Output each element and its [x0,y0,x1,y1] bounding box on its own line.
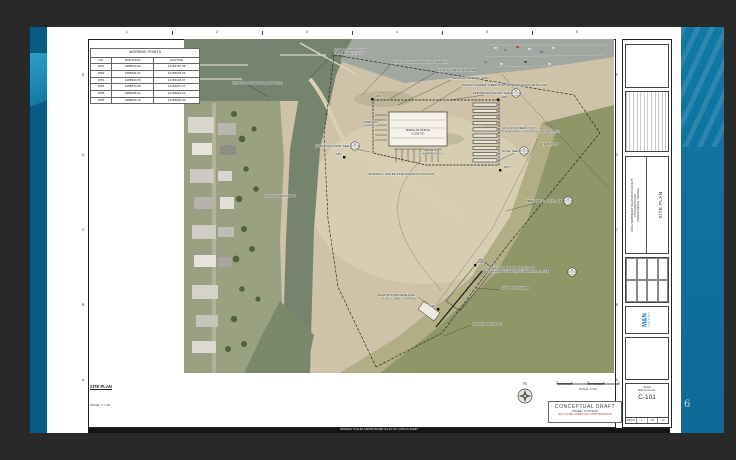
issue-info-box [625,257,669,303]
wp-label: WP3 [479,260,485,264]
sheet-size-row: ANSI D 1 OF 10 [626,417,668,423]
firm-logo-name: moffatt & nichol [649,312,652,327]
map-label: MODULAR OFFICE [406,128,430,132]
conceptual-draft-stamp: CONCEPTUAL DRAFT ISSUED: 12/20/2018 NOT … [548,401,622,423]
project-box: USCG TEMPORARY RELOCATION FACILITY LYNNH… [625,156,669,254]
sheet-title-cell: SITE PLAN [646,157,669,253]
svg-text:C-501: C-501 [513,95,520,97]
sheet-index: 1 [637,418,648,423]
map-label: (APPROX) [364,124,379,128]
north-label: N [523,381,526,386]
table-row: WP23488494.0112166099.56 [91,70,200,77]
firm-logo-box: M&N moffatt & nichol [625,306,669,334]
svg-text:C-501: C-501 [352,148,359,150]
sheet-of: OF [648,418,659,423]
table-row: WP43488370.3012166037.27 [91,84,200,91]
blank-box [625,337,669,380]
wp-label: WP2 [502,95,508,99]
sheet-reference-box: Sheet Reference No. C-101 ANSI D 1 OF 10 [625,383,669,424]
svg-text:C-501: C-501 [521,153,528,155]
map-label: (UNIMPROVED) [419,152,442,156]
north-arrow: N [514,379,536,414]
aerial-photo [184,39,614,373]
slide[interactable]: 1 2 3 4 5 6 E D C B A E D C B A [30,27,724,433]
map-label: (TEMPORARY STORAGE WAIVER REQ) [502,130,560,134]
wp-label: WP6 [429,304,435,308]
map-label: EXISTING WATER HOOKUP (APPROX) [392,60,448,64]
table-title: WORKING POINTS [91,49,200,58]
detail-circle: 05 C-501 [564,197,572,205]
presentation-stage: 1 2 3 4 5 6 E D C B A E D C B A [0,0,736,460]
sheet-note-bar: DRAWING SCALES SHOWN BASED ON 22"x34" (A… [88,428,670,433]
site-plan-map: ENTRANCE LOCATION FROM PARKING LOT EXIST… [184,39,614,373]
grid-ref-D-left: D [82,153,85,157]
sheet-title: SITE PLAN [658,191,663,218]
table-row: WP13488513.0812166157.88 [91,64,200,71]
view-title-block: SITE PLAN SCALE: 1" = 40' [90,375,112,411]
grid-ref-B-left: B [82,303,84,307]
working-points-table: WORKING POINTS NO. NORTHING EASTING WP13… [90,48,200,104]
map-label: SEWAGE HOLDING TANK [452,76,490,80]
grid-ref-C-left: C [82,228,85,232]
col-header: EASTING [154,57,200,64]
map-label: EXISTING BOARDWALK (APPROX) [232,81,283,85]
map-label: ENTRANCE GATE, SEE [315,144,349,148]
map-label: PEDESTRIAN PATH, SEE [526,199,562,203]
grid-tick [172,31,173,35]
detail-circle: 04 C-501 [520,147,528,155]
svg-text:C-501: C-501 [565,203,572,205]
diagonal-stripes [681,27,724,147]
wp-label: WP5 [335,152,341,156]
table-row: WP53488104.2112165824.03 [91,90,200,97]
wp-label: WP1 [376,94,382,98]
stamp-warning: NOT TO BE USED FOR CONSTRUCTION [549,413,621,417]
seal-box [625,44,669,88]
slide-page-number: 6 [684,399,690,410]
map-label: WATER, POWER, FIBER HOOKUP FOR MODULAR O… [462,83,547,87]
diagonal-accent-shape [30,53,47,149]
project-line3: VIRGINIA BEACH, VIRGINIA [638,178,641,232]
sheet-total: 10 [658,418,668,423]
map-label: BULKHEAD WITH JERSEY BARRIERS, SEE [486,270,549,274]
grid-ref-1: 1 [126,30,128,34]
revision-table [625,91,669,152]
drawing-sheet: 1 2 3 4 5 6 E D C B A E D C B A [48,27,681,433]
wp-label: WP4 [504,165,510,169]
grid-tick [532,31,533,35]
grid-tick [352,31,353,35]
view-title: SITE PLAN [90,384,112,390]
map-label: 8' MIN WATER DEPTH [264,194,296,198]
slide-left-accent-band [30,27,47,433]
grid-ref-A-left: A [82,378,84,382]
grid-ref-4: 4 [396,30,398,34]
map-label: EXISTING TRANSFORMER [437,68,477,72]
map-label: CITY BOAT BERTH [501,286,528,290]
grid-tick [262,31,263,35]
detail-circle: 03 C-501 [512,89,520,97]
map-label: BURIED 1" WATER LINE FOR BOAT HOOKUP [369,172,434,176]
map-label: GATE, SEE [502,149,518,153]
scale-bar: SCALE: 1"=40' [556,380,620,398]
grid-tick [442,31,443,35]
grid-ref-3: 3 [306,30,308,34]
map-label: (5,558 SF) [412,132,425,136]
map-label: PARCEL BOUNDARY [472,322,502,326]
grid-ref-E-left: E [82,73,84,77]
project-name-cell: USCG TEMPORARY RELOCATION FACILITY LYNNH… [626,157,647,253]
grid-ref-6: 6 [576,30,578,34]
map-label: ATFP LIMITS [540,142,558,146]
grid-ref-2: 2 [216,30,218,34]
svg-text:C-501: C-501 [569,274,576,276]
title-block: USCG TEMPORARY RELOCATION FACILITY LYNNH… [622,39,672,428]
map-label: FROM PARKING LOT [334,52,365,56]
grid-ref-5: 5 [486,30,488,34]
map-label: PERIMETER FENCE, SEE [473,91,510,95]
table-row: WP33488390.0512166136.07 [91,77,200,84]
view-scale: SCALE: 1" = 40' [90,403,110,407]
slide-right-accent-band: 6 [681,27,724,433]
sheet-number: C-101 [626,393,668,402]
detail-circle: 04 C-501 [351,142,359,150]
col-header: NORTHING [112,57,154,64]
table-row: WP63488090.1012165946.03 [91,97,200,104]
col-header: NO. [91,57,112,64]
map-label: FUEL CUBE STORAGE [383,297,416,301]
scale-bar-label: SCALE: 1"=40' [579,387,598,391]
sheet-size: ANSI D [626,418,637,423]
detail-circle: 06 C-501 [568,268,576,276]
